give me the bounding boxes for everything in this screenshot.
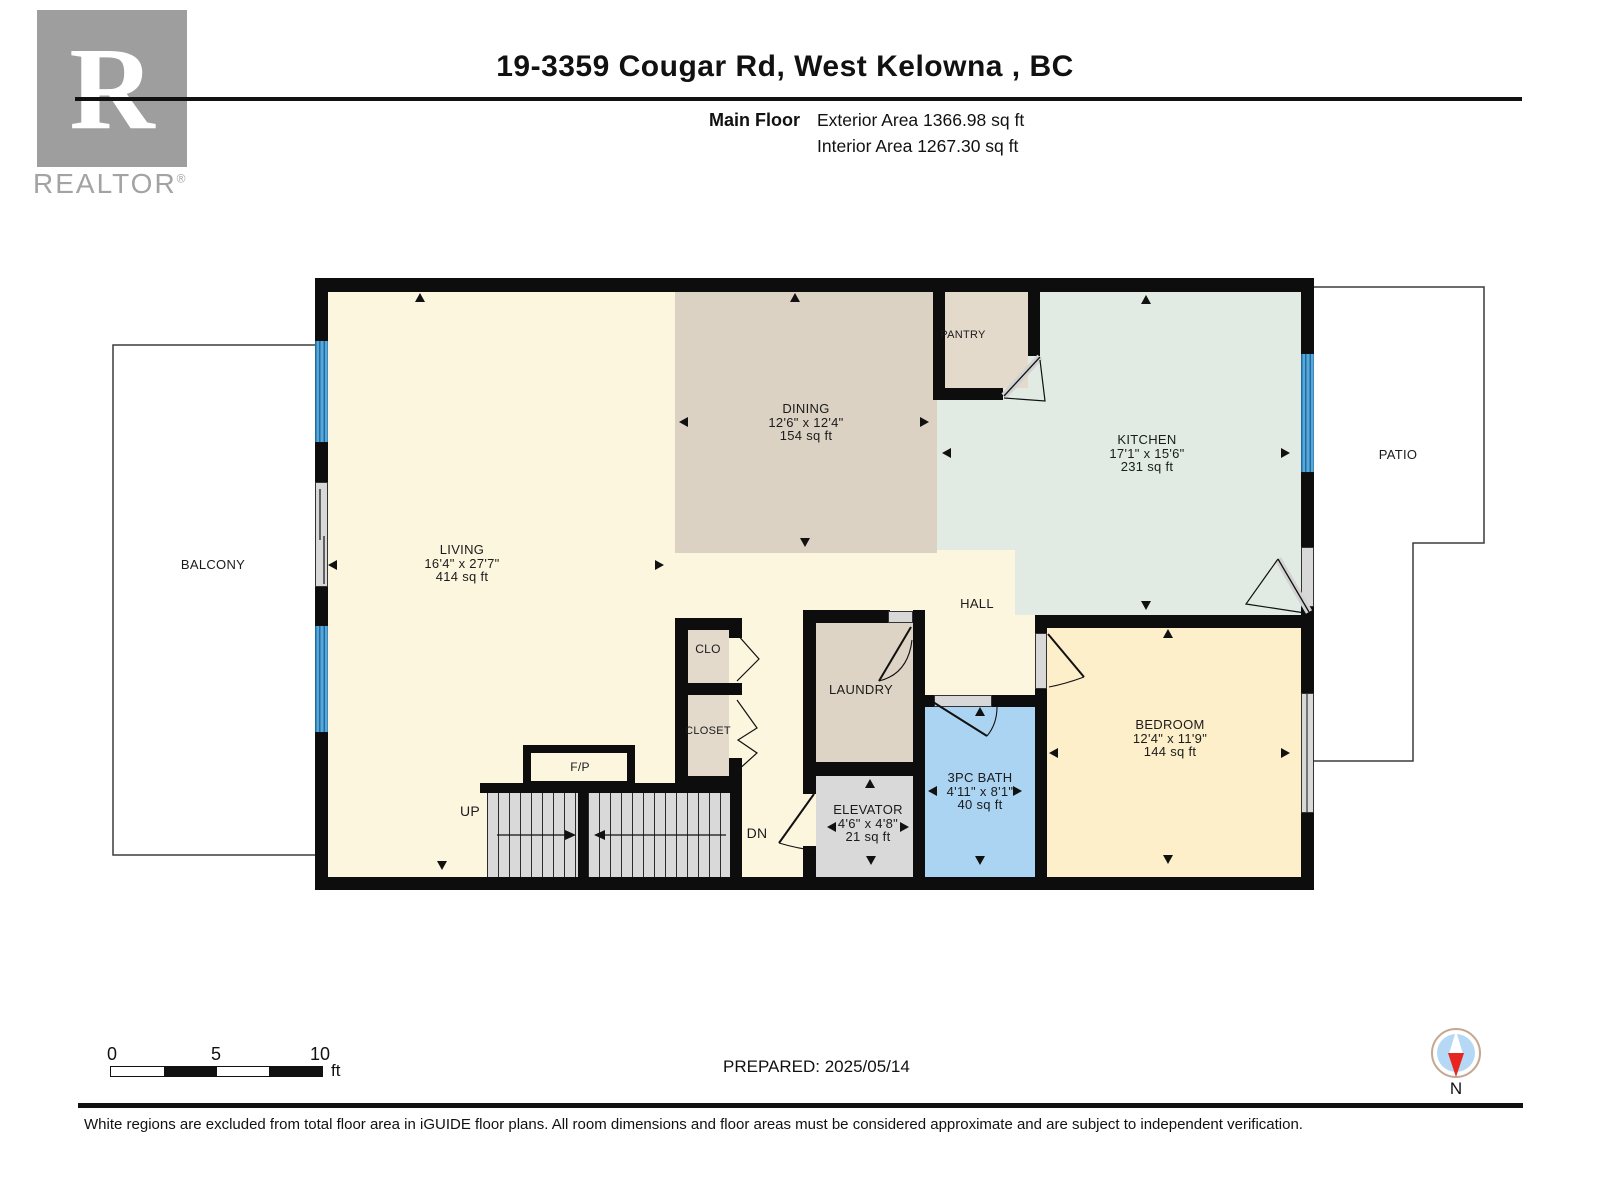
stairs-up-label: UP: [460, 805, 480, 819]
clo-door-swing: [736, 633, 759, 681]
elevator-dim-arrow-right: [900, 822, 909, 832]
living-dim-arrow-up: [415, 293, 425, 302]
bedroom-label: BEDROOM12'4" x 11'9"144 sq ft: [1133, 718, 1207, 759]
kitchen-label: KITCHEN17'1" x 15'6"231 sq ft: [1109, 433, 1184, 474]
hall-label: HALL: [960, 597, 994, 611]
scale-seg-2: [164, 1067, 217, 1076]
header-divider: [75, 97, 1522, 101]
balcony-label: BALCONY: [181, 558, 245, 572]
stairs-up-arrow-head: [565, 830, 576, 840]
bath-dim-arrow-up: [975, 707, 985, 716]
bedroom-door-swing: [1049, 677, 1084, 687]
kitchen-dim-arrow-left: [942, 448, 951, 458]
laundry-label: LAUNDRY: [829, 683, 893, 697]
closet-label: CLOSET: [685, 725, 731, 739]
kitchen-dim-arrow-up: [1141, 295, 1151, 304]
elevator-dim-arrow-down: [866, 856, 876, 865]
footer-divider: [78, 1103, 1523, 1108]
bedroom-dim-arrow-left: [1049, 748, 1058, 758]
scale-seg-4: [269, 1067, 322, 1076]
dining-dim-arrow-up: [790, 293, 800, 302]
scale-bar: [110, 1066, 323, 1077]
elevator-door-swing: [779, 843, 814, 850]
dining-dim-arrow-down: [800, 538, 810, 547]
dining-dim-arrow-left: [679, 417, 688, 427]
scale-tick-5: 5: [211, 1044, 221, 1065]
kitchen-dim-arrow-right: [1281, 448, 1290, 458]
elevator-door-leaf: [779, 794, 814, 843]
kitchen-dim-arrow-down: [1141, 601, 1151, 610]
plan-annotations: [0, 0, 1600, 1200]
fireplace-label: F/P: [570, 761, 590, 775]
bath-dim-arrow-left: [928, 786, 937, 796]
living-label: LIVING16'4" x 27'7"414 sq ft: [424, 543, 499, 584]
scale-seg-3: [217, 1067, 270, 1076]
bedroom-door-leaf: [1048, 634, 1084, 677]
scale-tick-0: 0: [107, 1044, 117, 1065]
elevator-label: ELEVATOR4'6" x 4'8"21 sq ft: [833, 803, 903, 844]
patio-label: PATIO: [1379, 448, 1418, 462]
prepared-date: PREPARED: 2025/05/14: [723, 1057, 910, 1077]
compass-north-label: N: [1442, 1079, 1470, 1099]
living-dim-arrow-right: [655, 560, 664, 570]
closet-bifold-doors: [737, 700, 757, 771]
living-dim-arrow-left: [328, 560, 337, 570]
bath-dim-arrow-down: [975, 856, 985, 865]
disclaimer-text: White regions are excluded from total fl…: [84, 1116, 1303, 1133]
living-dim-arrow-down: [437, 861, 447, 870]
scale-unit: ft: [331, 1061, 340, 1081]
pantry-door-edge: [1004, 357, 1040, 396]
clo-label: CLO: [695, 643, 721, 657]
bath-dim-arrow-right: [1013, 786, 1022, 796]
stairs-down-arrow-head: [594, 830, 605, 840]
stairs-down-label: DN: [747, 827, 768, 841]
elevator-dim-arrow-left: [827, 822, 836, 832]
realtor-wordmark: REALTOR®: [33, 168, 188, 200]
bath-label: 3PC BATH4'11" x 8'1"40 sq ft: [947, 771, 1014, 812]
laundry-door-leaf: [879, 627, 911, 681]
bedroom-dim-arrow-right: [1281, 748, 1290, 758]
bedroom-dim-arrow-up: [1163, 629, 1173, 638]
patio-door-edge: [1278, 559, 1309, 612]
scale-seg-1: [111, 1067, 164, 1076]
laundry-door-swing: [879, 640, 912, 681]
scale-tick-10: 10: [310, 1044, 330, 1065]
pantry-door-swing: [1004, 360, 1045, 401]
registered-mark-icon: ®: [177, 172, 188, 186]
pantry-label: PANTRY: [940, 329, 985, 343]
dining-dim-arrow-right: [920, 417, 929, 427]
bedroom-dim-arrow-down: [1163, 855, 1173, 864]
realtor-logo: R: [37, 10, 187, 167]
realtor-logo-letter: R: [69, 30, 154, 148]
dining-label: DINING12'6" x 12'4"154 sq ft: [768, 402, 843, 443]
bath-door-swing: [987, 707, 997, 736]
elevator-dim-arrow-up: [865, 779, 875, 788]
